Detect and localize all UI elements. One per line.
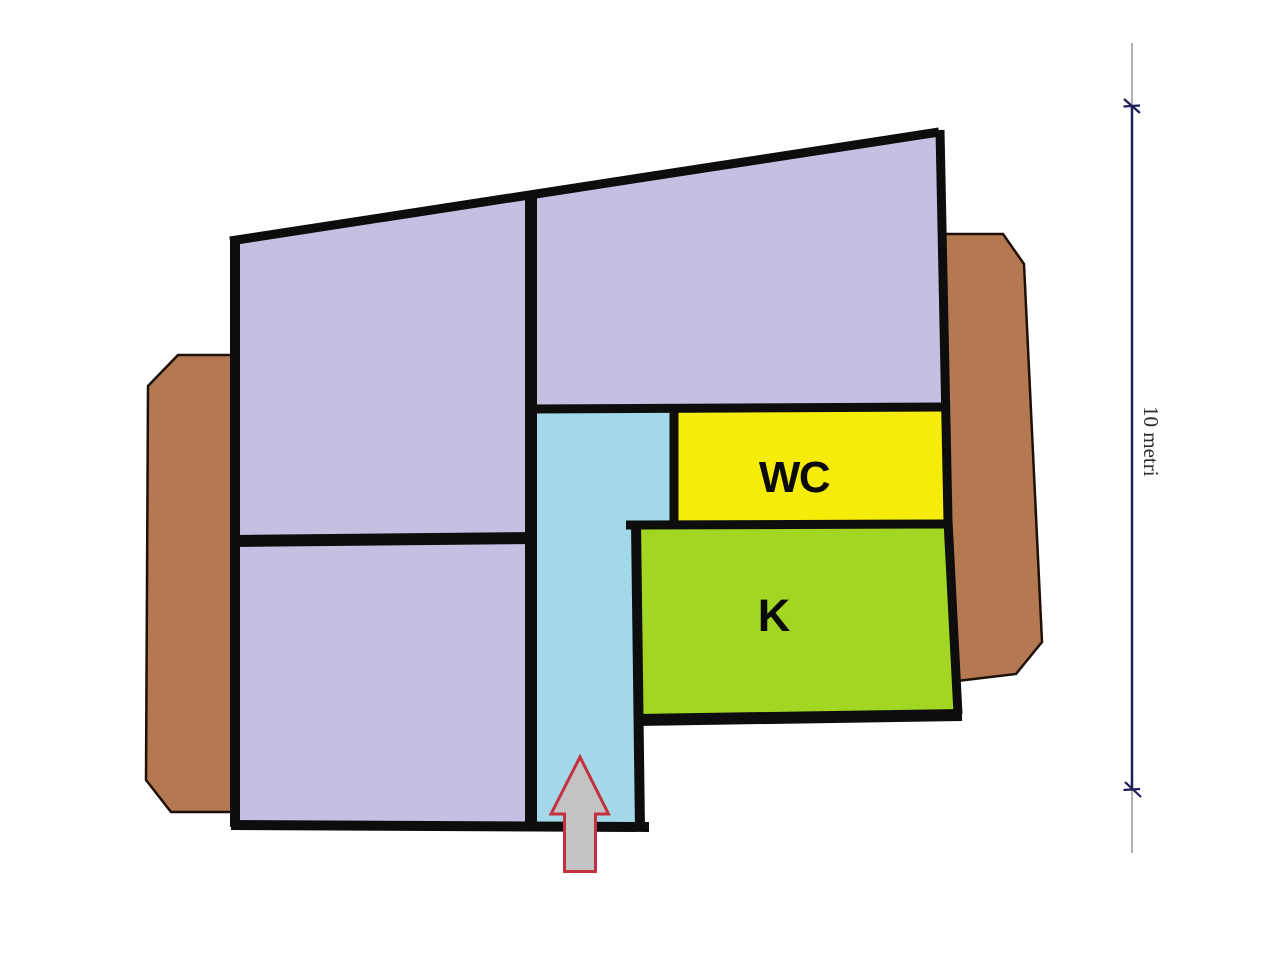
svg-text:10 metri: 10 metri — [1139, 406, 1163, 477]
svg-text:K: K — [758, 590, 791, 641]
svg-text:WC: WC — [759, 453, 830, 502]
